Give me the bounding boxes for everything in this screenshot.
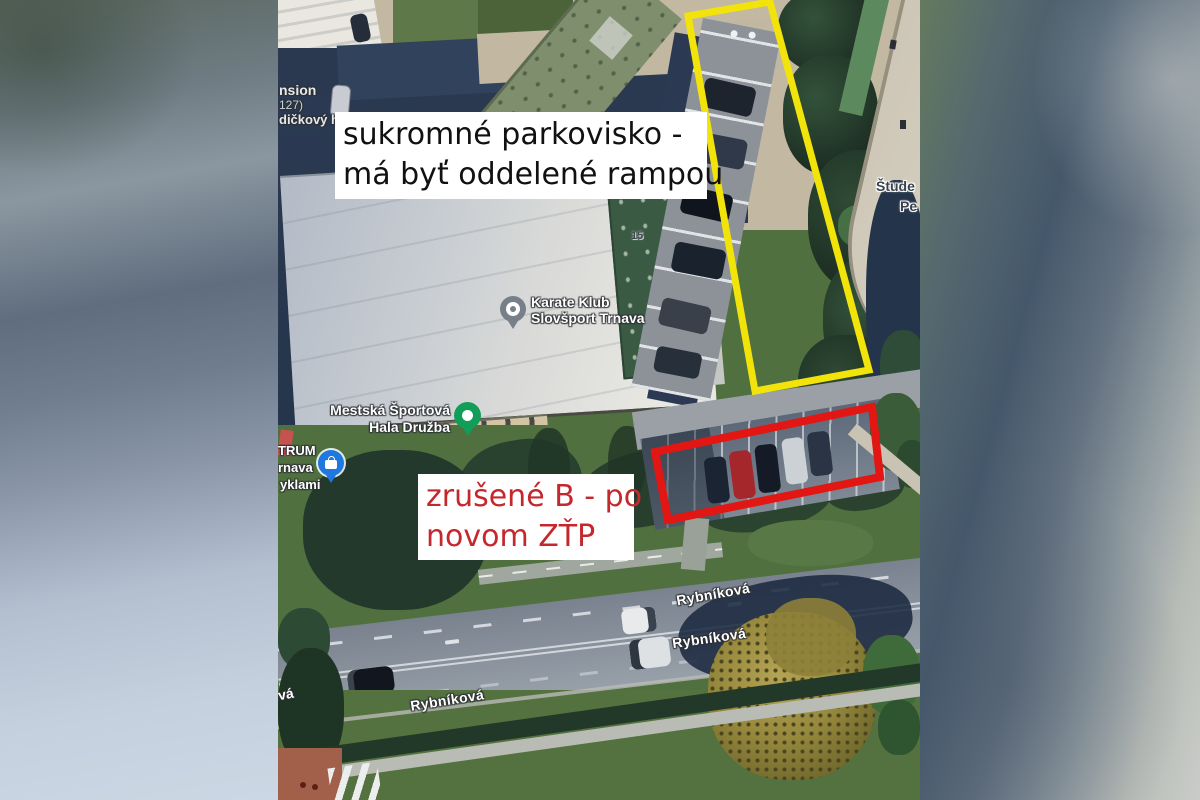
parked-car-red [728, 449, 756, 499]
note-cancelled-parking: zrušené B - po novom ZŤP [418, 474, 634, 560]
parked-car [653, 345, 703, 379]
parked-car [703, 456, 730, 504]
bollard [300, 782, 306, 788]
shopping-bag-glyph [325, 460, 337, 469]
pin-tail [463, 428, 473, 436]
lane-arrow [445, 639, 459, 645]
note-line: zrušené B - po [426, 477, 626, 517]
note-line: novom ZŤP [426, 517, 626, 557]
shopping-bag-pin-icon[interactable] [318, 450, 344, 476]
parked-car [670, 241, 727, 280]
sport-hall-label-line1[interactable]: Mestská Športová [318, 402, 450, 418]
blurred-backdrop-right [920, 0, 1200, 800]
parked-car-silver [781, 437, 809, 485]
karate-klub-label-line2[interactable]: Slovšport Trnava [531, 310, 645, 326]
parked-car [807, 431, 834, 477]
sport-hall-label-line2[interactable]: Hala Družba [318, 419, 450, 435]
small-path [681, 517, 709, 571]
green-tree-bottomright [878, 700, 920, 755]
satellite-map[interactable]: nsion 127) dičkový hote 15 Karate Klub S… [278, 0, 920, 800]
parked-car [657, 297, 712, 336]
parked-car [754, 443, 781, 493]
pin-center-dot [462, 410, 473, 421]
parked-car [700, 77, 757, 118]
stude-label-line2[interactable]: Pe [900, 198, 917, 214]
pension-label-line1[interactable]: nsion [279, 82, 316, 98]
autumn-tree-top [766, 598, 856, 676]
lot-dot [748, 31, 756, 39]
centrum-label-line3[interactable]: yklami [280, 477, 320, 492]
pin-tail [326, 475, 336, 483]
centrum-label-line1[interactable]: TRUM [278, 443, 316, 458]
grass-bright-patch [748, 520, 873, 566]
place-pin-icon-karate[interactable] [500, 296, 526, 322]
centrum-label-line2[interactable]: rnava [278, 460, 313, 475]
car-on-road-white [628, 636, 671, 671]
car-on-road-white [621, 606, 658, 635]
note-line: sukromné parkovisko - [343, 115, 699, 155]
karate-klub-label-line1[interactable]: Karate Klub [531, 294, 610, 310]
bollard [312, 784, 318, 790]
blurred-backdrop-left [0, 0, 278, 800]
building-number-label: 15 [631, 230, 643, 242]
zebra-stripes [327, 762, 382, 800]
place-pin-icon-hala[interactable] [454, 402, 481, 429]
pension-label-line2: 127) [279, 98, 303, 112]
pin-tail [508, 321, 518, 329]
note-private-parking: sukromné parkovisko - má byť oddelené ra… [335, 112, 707, 199]
stude-label-line1[interactable]: Štude [876, 178, 915, 194]
pin-center-dot [510, 306, 516, 312]
note-line: má byť oddelené rampou [343, 155, 699, 195]
street-label-rybnikova-clipped: vá [278, 685, 295, 703]
lot-dot [730, 30, 738, 38]
screenshot-root: nsion 127) dičkový hote 15 Karate Klub S… [0, 0, 1200, 800]
pedestrian-dot [900, 120, 906, 129]
